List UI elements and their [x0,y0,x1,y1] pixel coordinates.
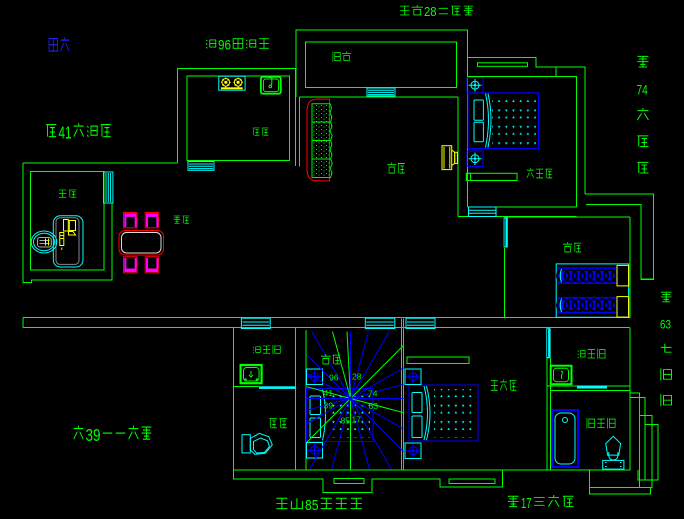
svg-text:85: 85 [305,497,318,514]
svg-text:74: 74 [368,389,378,399]
svg-text:41: 41 [324,388,334,398]
svg-text:41: 41 [59,122,72,142]
svg-text:96: 96 [329,373,339,383]
svg-text:39: 39 [86,425,101,445]
svg-text:28: 28 [424,4,437,19]
svg-text:85: 85 [341,416,351,426]
svg-text:96: 96 [218,37,231,53]
svg-text:74: 74 [637,83,648,98]
svg-text:63: 63 [660,318,671,332]
svg-text:17: 17 [352,415,362,425]
svg-text:39: 39 [324,401,334,411]
svg-text:28: 28 [352,372,362,382]
svg-text:17: 17 [521,495,532,512]
svg-text:63: 63 [369,401,379,411]
